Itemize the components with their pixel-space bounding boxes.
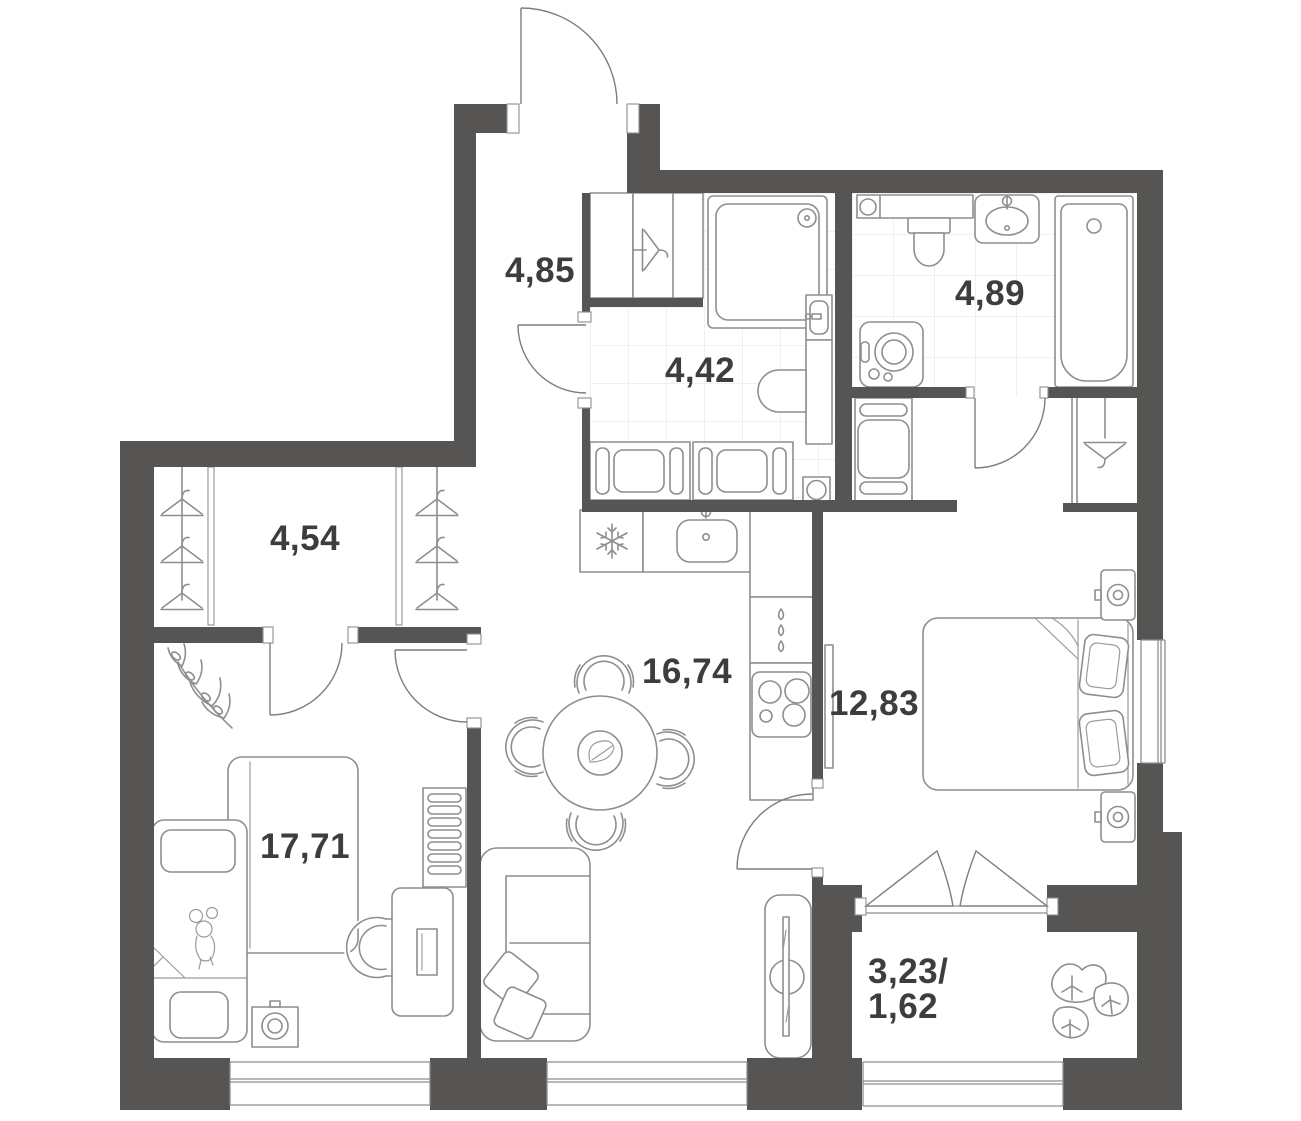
window-icon [547,1058,747,1110]
desk-chair-icon [347,888,453,1016]
tv-icon [765,895,811,1058]
washing-machine-icon [860,322,923,387]
hanger-icon [1084,443,1126,468]
rug-icon [170,992,228,1038]
kitchen-counter [643,505,813,597]
balcony-window-icon [863,1058,1063,1110]
radiator-bench-icon [855,398,912,502]
balcony-french-door-icon [855,851,1058,915]
room-label-wardrobe: 4,54 [270,519,340,558]
room-label-balcony-line1: 3,23/ [868,952,948,991]
dryer-icon [693,442,793,500]
nightstand-lamp-icon [1095,792,1135,842]
floor-plan-svg: 4,85 4,42 4,89 4,54 16,74 17,71 12,83 3,… [0,0,1301,1121]
sink-icon [806,295,833,340]
corridor-fixtures [855,397,1126,503]
wardrobe-door [263,627,358,715]
sink-icon [975,195,1039,243]
hallway-closet [590,193,703,298]
room-label-hallway: 4,85 [505,251,575,290]
room-label-bathroom-bathtub: 4,89 [955,274,1025,313]
bathroom-cabinet [806,340,832,444]
toilet-icon [758,370,806,412]
room-label-master-bedroom: 12,83 [829,684,919,723]
room-label-kids-bedroom: 17,71 [260,827,350,866]
floor-plan-canvas: 4,85 4,42 4,89 4,54 16,74 17,71 12,83 3,… [0,0,1301,1121]
room-label-balcony-line2: 1,62 [868,987,938,1026]
washing-machine-icon [590,442,690,500]
room-label-bathroom-shower: 4,42 [665,351,735,390]
bathroom-shower-door [518,312,591,408]
counter [857,195,973,218]
kids-bedroom-door [395,634,481,728]
bathroom-bathtub-door [966,387,1048,468]
stove-icon [750,663,813,800]
kitchen-living-furniture [480,505,813,1058]
kitchen-drawers [750,597,813,663]
floor-drain-icon [803,477,830,503]
room-label-kitchen-living: 16,74 [642,652,732,691]
bathtub-icon [1055,196,1133,387]
entrance-door-icon [507,8,639,133]
fridge-icon [580,510,643,572]
nightstand-lamp-icon [1095,570,1135,620]
plant-icon [168,644,232,728]
window-icon [230,1058,430,1110]
sofa-icon [480,848,590,1041]
nightstand-lamp-icon [252,1001,298,1047]
master-bedroom-window-icon [1137,640,1168,763]
double-bed-icon [923,618,1133,790]
shelf-radiator-icon [423,788,466,887]
balcony-plant-icon [1052,964,1128,1038]
